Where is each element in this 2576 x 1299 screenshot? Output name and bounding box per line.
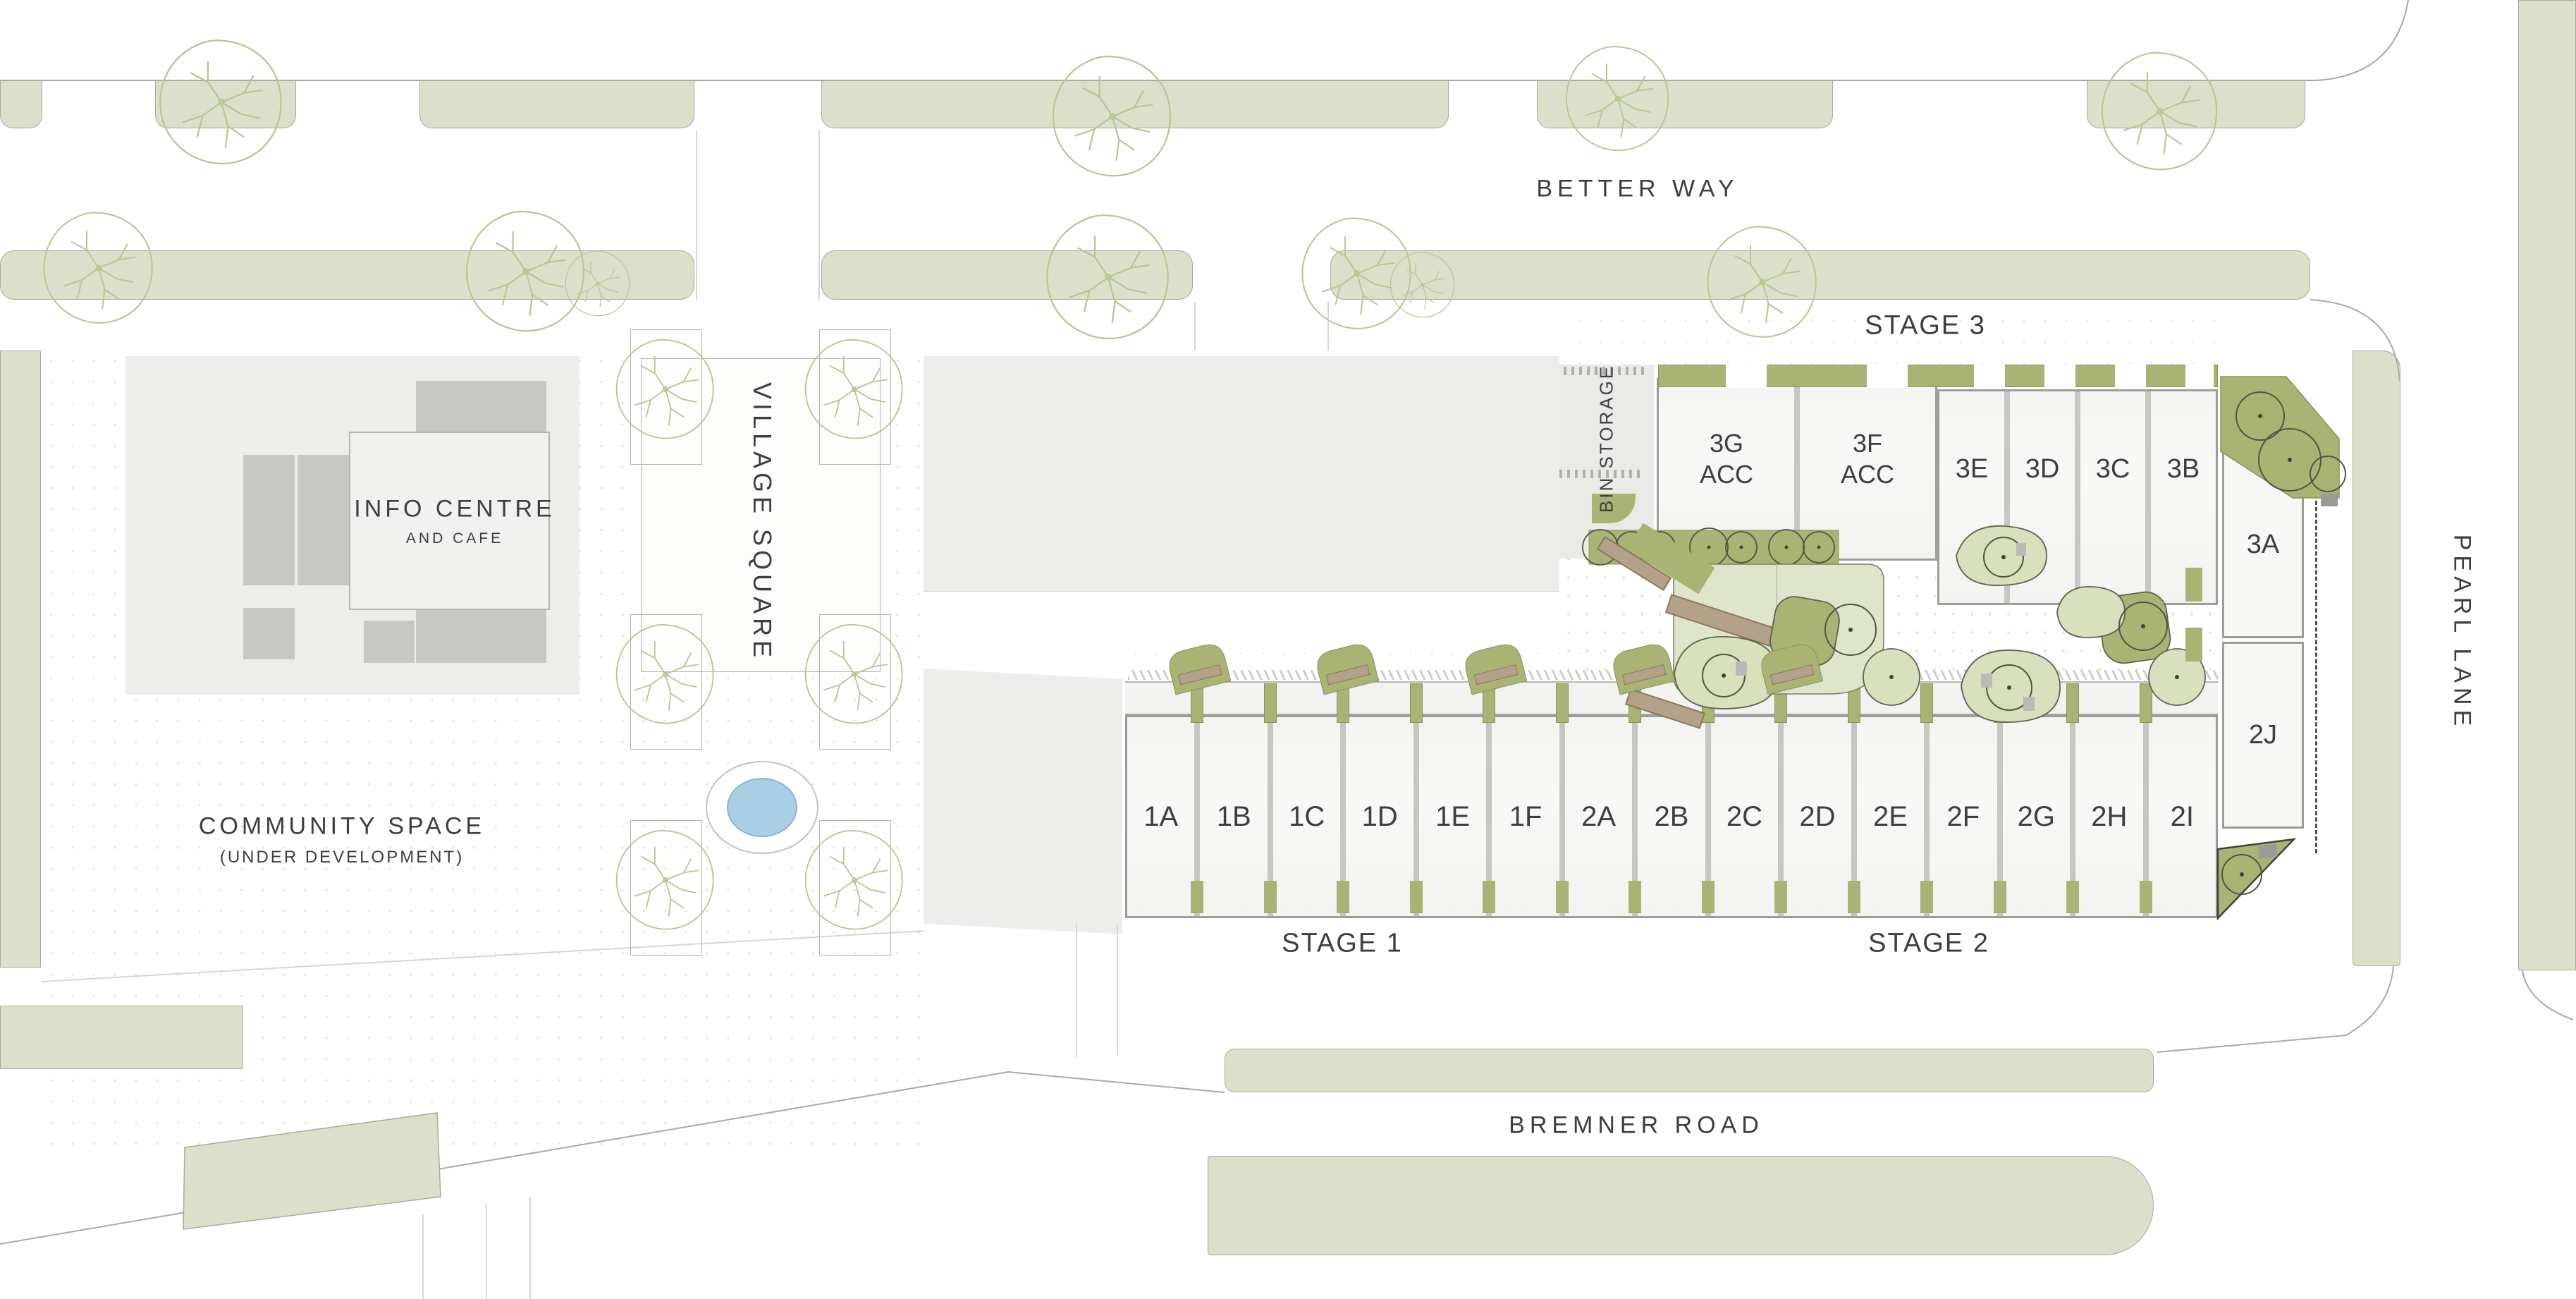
stage3-acc-row: 3GACC 3FACC [1657,378,1937,561]
lot-2B[interactable]: 2B [1632,717,1705,916]
tree-planter [630,329,702,465]
stage-1-label: STAGE 1 [1282,929,1403,959]
lot-label: 1A [1143,801,1178,833]
bin-storage-label: BIN STORAGE [1596,365,1618,513]
lot-1B[interactable]: 1B [1194,717,1267,916]
lot-label: 1F [1509,801,1542,833]
lot-2C[interactable]: 2C [1705,717,1778,916]
bremner-south-verge [1208,1156,2154,1255]
west-end-panel [924,669,1122,934]
lot-label: 2B [1655,801,1689,833]
driveway-gap [2044,364,2075,388]
lot-2E[interactable]: 2E [1851,717,1924,916]
verge-segment [155,80,296,128]
pearl-lane-east-strip [2518,0,2576,970]
lot-label: 2I [2171,801,2194,833]
info-centre-title: INFO CENTRE [354,496,555,523]
verge-segment [2087,80,2305,128]
driveway-gap [1726,364,1767,388]
verge-segment [419,80,694,128]
lot-label: 1E [1435,801,1470,833]
lot-2A[interactable]: 2A [1559,717,1632,916]
verge-band [821,250,1193,300]
bremner-north-verge [1225,1049,2154,1092]
lot-label: 1C [1289,801,1325,833]
lot-1E[interactable]: 1E [1413,717,1486,916]
tree-planter [819,329,891,465]
info-centre-subtitle: AND CAFE [406,530,503,547]
street-label-better-way: BETTER WAY [1536,176,1738,203]
info-centre-wing [243,608,295,659]
southwest-verge [0,1006,243,1069]
driveway-gap [1867,364,1908,388]
lot-label: 1B [1217,801,1251,833]
verge-band [0,250,694,300]
verge-segment [821,80,1449,128]
lot-label: 2C [1726,801,1762,833]
lot-3C[interactable]: 3C [2075,391,2145,603]
lot-label: 3A [2247,530,2279,560]
community-space-subtitle: (UNDER DEVELOPMENT) [220,848,464,867]
tree-planter [630,820,702,956]
lot-2H[interactable]: 2H [2070,717,2142,916]
lot-3G[interactable]: 3GACC [1659,380,1794,559]
lot-label: 3D [2025,454,2060,484]
boundary-dashed-line [2315,437,2317,853]
lot-label: 2A [1581,801,1616,833]
driveway-gap [2185,364,2214,388]
lot-1F[interactable]: 1F [1486,717,1559,916]
street-label-bremner-road: BREMNER ROAD [1509,1112,1764,1140]
lot-label: 2E [1873,801,1908,833]
tree-planter [819,614,891,750]
info-centre-roof-block [416,381,546,432]
lot-2F[interactable]: 2F [1924,717,1997,916]
lot-label: 3FACC [1841,428,1894,489]
lot-3F[interactable]: 3FACC [1794,380,1935,559]
lot-label: 2G [2018,801,2055,833]
lot-label: 3B [2167,454,2200,484]
verge-band [1330,250,2310,300]
footpath-hatch [1128,670,2218,680]
lot-label: 2J [2249,720,2277,750]
stage-2-label: STAGE 2 [1868,929,1989,959]
info-centre-wing [364,621,415,663]
info-centre-roof-block [416,610,546,663]
verge-segment [1537,80,1833,128]
lot-3D[interactable]: 3D [2004,391,2075,603]
lot-2G[interactable]: 2G [1997,717,2070,916]
tree-planter [819,820,891,956]
lot-1A[interactable]: 1A [1127,717,1194,916]
lot-3E[interactable]: 3E [1939,391,2004,603]
lot-label: 2F [1947,801,1980,833]
stage12-row: 1A 1B 1C 1D 1E 1F 2A 2B 2C 2D 2E 2F [1125,715,2218,918]
verge-segment [0,80,42,128]
masterplan-canvas: 3GACC 3FACC 3E 3D 3C 3B 3A 2 [0,0,2576,1299]
driveway-gap [1974,364,2005,388]
stage3-row: 3E 3D 3C 3B [1937,389,2218,605]
street-label-pearl-lane: PEARL LANE [2448,535,2476,731]
lot-1C[interactable]: 1C [1268,717,1340,916]
lot-label: 3C [2096,454,2130,484]
village-square-label: VILLAGE SQUARE [747,382,777,661]
community-space-title: COMMUNITY SPACE [199,813,485,841]
info-centre-wing [298,455,349,585]
info-centre-wing [243,455,295,585]
lot-3B[interactable]: 3B [2145,391,2216,603]
frontage-band [1125,681,2218,715]
tree-planter [630,614,702,750]
lot-label: 2D [1799,801,1835,833]
stage-3-label: STAGE 3 [1865,311,1986,341]
lot-3A[interactable]: 3A [2222,451,2304,638]
west-edge-strip [0,350,41,968]
lot-2D[interactable]: 2D [1778,717,1851,916]
lot-2I[interactable]: 2I [2143,717,2216,916]
lot-label: 1D [1362,801,1398,833]
driveway-gap [2115,364,2146,388]
lot-label: 3GACC [1700,428,1753,489]
pond [727,778,797,837]
lot-label: 3E [1956,454,1988,484]
future-stage-panel [924,356,1559,592]
lot-2J[interactable]: 2J [2222,642,2304,829]
lot-label: 2H [2091,801,2127,833]
lot-1D[interactable]: 1D [1340,717,1413,916]
pearl-lane-west-verge [2353,350,2400,966]
